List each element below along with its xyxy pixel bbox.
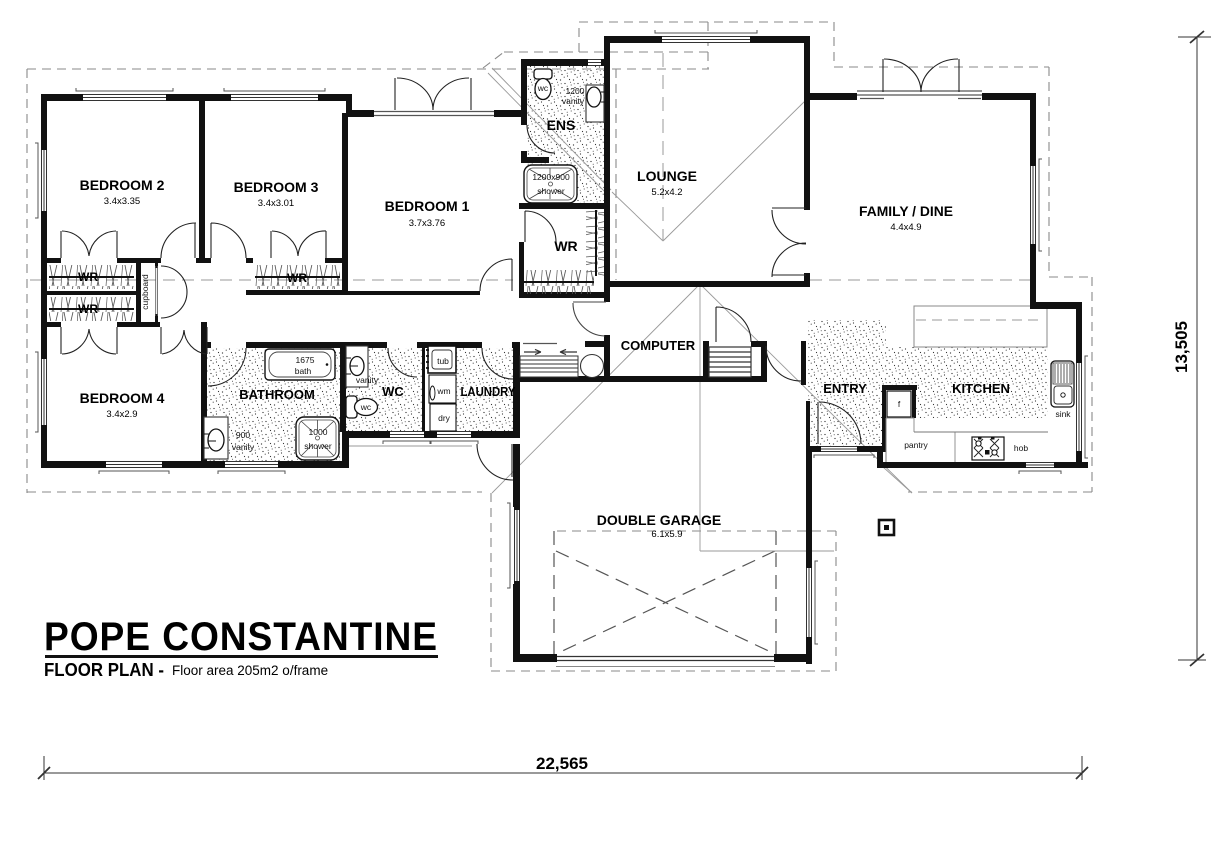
svg-text:POPE CONSTANTINE: POPE CONSTANTINE — [44, 615, 438, 659]
svg-text:13,505: 13,505 — [1172, 321, 1191, 373]
svg-text:3.4x2.9: 3.4x2.9 — [106, 409, 137, 420]
svg-text:22,565: 22,565 — [536, 754, 588, 773]
svg-text:FAMILY / DINE: FAMILY / DINE — [859, 203, 953, 219]
svg-text:3.4x3.35: 3.4x3.35 — [104, 196, 140, 207]
svg-text:ENS: ENS — [547, 117, 576, 133]
svg-text:4.4x4.9: 4.4x4.9 — [890, 222, 921, 233]
svg-text:hob: hob — [1014, 443, 1028, 453]
svg-text:BATHROOM: BATHROOM — [239, 387, 315, 402]
svg-text:FLOOR PLAN -: FLOOR PLAN - — [44, 660, 164, 680]
svg-text:900: 900 — [236, 430, 250, 440]
svg-text:KITCHEN: KITCHEN — [952, 381, 1010, 396]
svg-text:WR: WR — [78, 270, 98, 284]
svg-text:ENTRY: ENTRY — [823, 381, 867, 396]
svg-text:6.1x5.9: 6.1x5.9 — [651, 529, 682, 540]
svg-text:LAUNDRY: LAUNDRY — [461, 384, 516, 399]
svg-text:pantry: pantry — [904, 440, 928, 450]
svg-text:COMPUTER: COMPUTER — [621, 338, 696, 353]
svg-text:vanity: vanity — [232, 442, 255, 452]
svg-text:1200: 1200 — [566, 86, 585, 96]
svg-text:WR: WR — [78, 302, 98, 316]
svg-text:bath: bath — [295, 366, 312, 376]
svg-text:BEDROOM 1: BEDROOM 1 — [385, 198, 470, 214]
svg-text:shower: shower — [537, 186, 565, 196]
svg-text:WR: WR — [554, 238, 577, 254]
svg-text:dry: dry — [438, 413, 451, 423]
svg-text:WR: WR — [287, 271, 307, 285]
svg-text:vanity: vanity — [356, 375, 379, 385]
svg-text:DOUBLE GARAGE: DOUBLE GARAGE — [597, 512, 721, 528]
svg-text:BEDROOM 2: BEDROOM 2 — [80, 177, 165, 193]
svg-text:wm: wm — [436, 386, 450, 396]
svg-text:WC: WC — [382, 384, 404, 399]
svg-text:LOUNGE: LOUNGE — [637, 168, 697, 184]
svg-text:wc: wc — [537, 83, 549, 93]
svg-text:BEDROOM 4: BEDROOM 4 — [80, 390, 165, 406]
svg-text:5.2x4.2: 5.2x4.2 — [651, 187, 682, 198]
svg-text:1675: 1675 — [296, 355, 315, 365]
svg-text:1200x900: 1200x900 — [532, 172, 570, 182]
svg-text:wc: wc — [360, 402, 372, 412]
svg-text:BEDROOM 3: BEDROOM 3 — [234, 179, 319, 195]
svg-text:vanity: vanity — [562, 96, 585, 106]
svg-text:3.4x3.01: 3.4x3.01 — [258, 198, 294, 209]
svg-text:3.7x3.76: 3.7x3.76 — [409, 218, 445, 229]
svg-text:tub: tub — [437, 356, 449, 366]
svg-text:shower: shower — [304, 441, 332, 451]
svg-text:cupboard: cupboard — [140, 274, 150, 310]
svg-text:1000: 1000 — [309, 427, 328, 437]
svg-text:Floor area 205m2 o/frame: Floor area 205m2 o/frame — [172, 663, 328, 678]
svg-text:sink: sink — [1055, 409, 1071, 419]
